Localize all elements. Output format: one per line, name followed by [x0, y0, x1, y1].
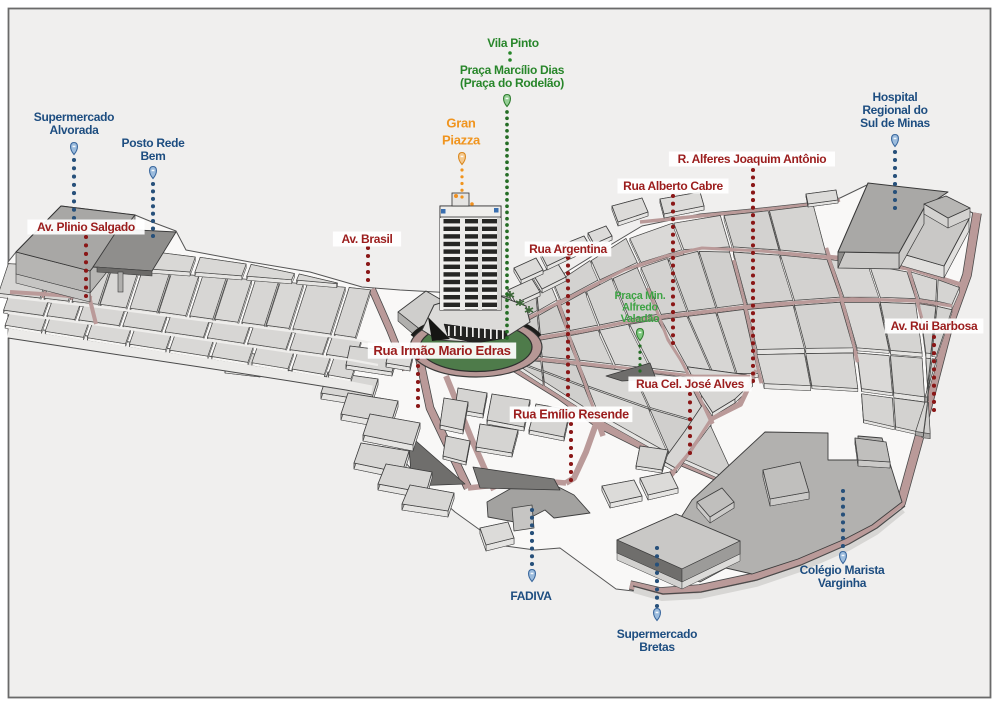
- svg-text:Praça Min.: Praça Min.: [614, 290, 665, 302]
- svg-text:Regional do: Regional do: [862, 103, 927, 117]
- svg-text:Praça Marcílio Dias: Praça Marcílio Dias: [460, 63, 565, 77]
- svg-text:FADIVA: FADIVA: [510, 589, 552, 603]
- svg-text:Av. Plinio Salgado: Av. Plinio Salgado: [37, 220, 135, 234]
- svg-text:Hospital: Hospital: [873, 90, 918, 104]
- svg-text:Posto Rede: Posto Rede: [121, 136, 185, 150]
- svg-text:Rua Emílio Resende: Rua Emílio Resende: [513, 407, 629, 421]
- svg-text:Gran: Gran: [446, 116, 476, 131]
- svg-text:Supermercado: Supermercado: [34, 110, 114, 124]
- svg-text:(Praça do Rodelão): (Praça do Rodelão): [460, 76, 564, 90]
- svg-text:Vila Pinto: Vila Pinto: [487, 36, 538, 50]
- svg-text:Supermercado: Supermercado: [617, 627, 697, 641]
- svg-text:Rua Irmão Mario Edras: Rua Irmão Mario Edras: [373, 343, 510, 358]
- svg-text:Bretas: Bretas: [639, 640, 675, 654]
- svg-text:Varginha: Varginha: [818, 576, 867, 590]
- svg-text:Rua Alberto Cabre: Rua Alberto Cabre: [623, 179, 723, 193]
- svg-text:Piazza: Piazza: [442, 133, 481, 148]
- svg-text:Colégio Marista: Colégio Marista: [800, 563, 885, 577]
- svg-text:Av. Brasil: Av. Brasil: [341, 232, 392, 246]
- svg-text:Valadão: Valadão: [621, 313, 660, 325]
- svg-text:Alvorada: Alvorada: [50, 123, 100, 137]
- svg-text:R. Alferes Joaquim Antônio: R. Alferes Joaquim Antônio: [678, 152, 827, 166]
- svg-text:Alfredo: Alfredo: [622, 302, 658, 314]
- svg-text:Sul de Minas: Sul de Minas: [860, 116, 930, 130]
- svg-text:Av. Rui Barbosa: Av. Rui Barbosa: [891, 319, 978, 333]
- svg-text:Bem: Bem: [140, 149, 165, 163]
- svg-text:Rua Cel. José Alves: Rua Cel. José Alves: [636, 377, 745, 391]
- svg-text:Rua Argentina: Rua Argentina: [529, 242, 607, 256]
